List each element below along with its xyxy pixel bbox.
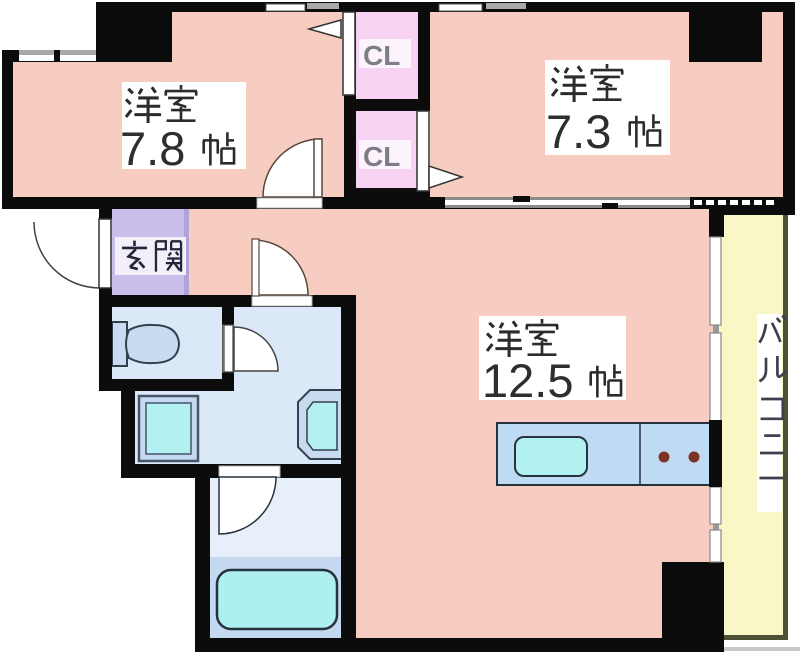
svg-text:CL: CL: [363, 141, 400, 172]
svg-text:CL: CL: [363, 40, 400, 71]
svg-text:12.5: 12.5: [482, 354, 573, 407]
svg-text:7.3: 7.3: [546, 105, 611, 158]
svg-text:7.8: 7.8: [120, 122, 185, 175]
